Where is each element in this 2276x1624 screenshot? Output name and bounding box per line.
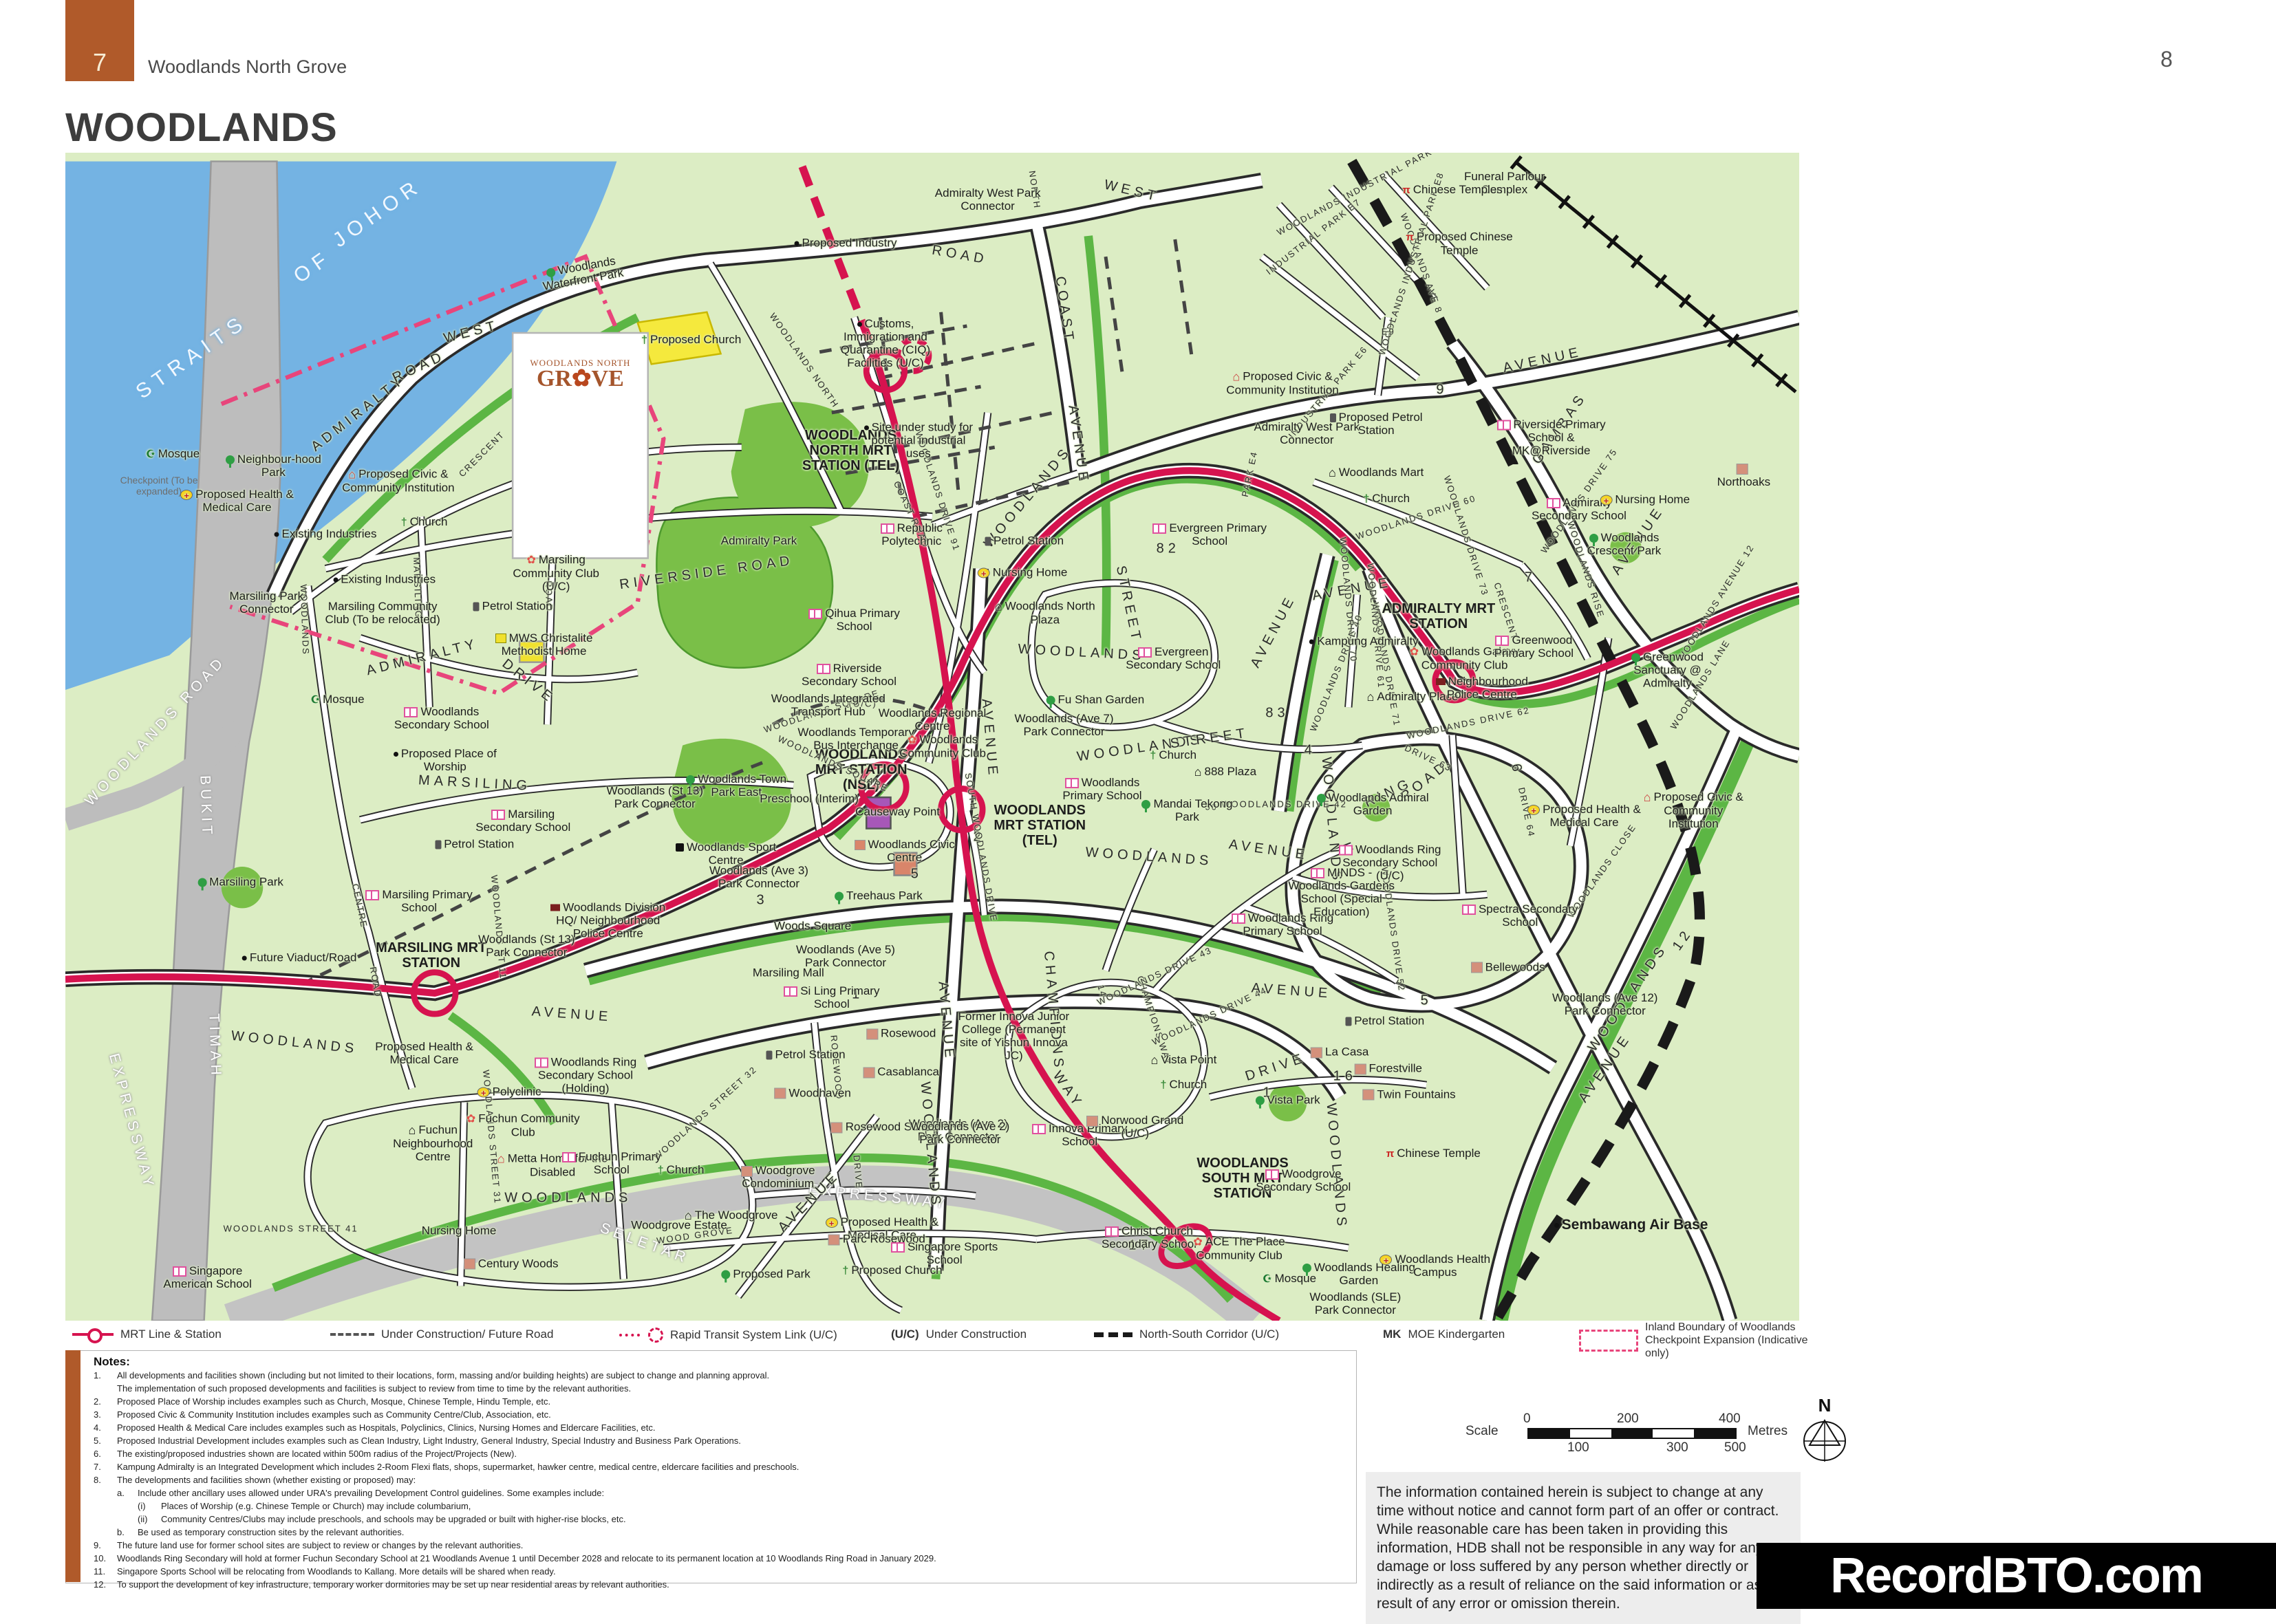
map-label: Woodlands Ring Secondary School (U/C)	[1331, 843, 1448, 883]
map-label-text: Marsiling Primary School	[382, 888, 472, 914]
ycross-icon	[826, 1217, 838, 1228]
map-label: Treehaus Park	[835, 889, 923, 902]
cross-icon: †	[1150, 749, 1156, 762]
map-label-text: Proposed Chinese Temple	[1417, 230, 1513, 257]
pump-icon	[473, 602, 480, 611]
yhouse-icon	[495, 634, 506, 643]
map-label-text: Spectra Secondary School	[1479, 902, 1578, 929]
map-label: Woodgrove Secondary School	[1245, 1167, 1362, 1193]
map-label: ⌂Proposed Civic & Community Institution	[1224, 369, 1341, 396]
map-label: Vista Park	[1256, 1094, 1320, 1107]
tree-icon	[835, 891, 844, 900]
tree-icon	[197, 878, 206, 887]
map-label-text: Woodlands (Ave 7) Park Connector	[1015, 712, 1114, 738]
map-label: 6	[1507, 762, 1525, 777]
map-label: WOODLANDS DRIVE 62	[1406, 704, 1531, 741]
north-compass: N	[1797, 1395, 1852, 1464]
scale-0: 0	[1523, 1411, 1531, 1427]
tree-icon	[686, 775, 695, 784]
map-label-text: Rosewood	[881, 1027, 936, 1040]
map-label-text: Woodlands Sport Centre	[687, 841, 776, 867]
map-label: TIMAH	[205, 1013, 224, 1079]
book-icon	[808, 609, 822, 619]
map-label: ✿Marsiling Community Club (U/C)	[497, 553, 614, 593]
map-label: Future Viaduct/Road	[242, 951, 357, 964]
salmon-icon	[828, 1234, 840, 1245]
map-label: Singapore Sports School	[886, 1240, 1003, 1266]
map-label-text: Riverside Primary School & MK@Riverside	[1512, 418, 1606, 457]
map-label-text: STRAITS	[132, 310, 252, 404]
notes-list: 1.All developments and facilities shown …	[94, 1369, 1349, 1591]
page-title: WOODLANDS	[65, 105, 338, 151]
map-label-text: WOODLANDS DRIVE 43	[1095, 945, 1214, 1008]
map-label-text: Woodgrove Estate	[631, 1218, 727, 1231]
map-label-text: Woodlands (Ave 12) Park Connector	[1552, 991, 1657, 1017]
map-label: Northoaks	[1716, 462, 1772, 488]
map-label-text: Fuchun Neighbourhood Centre	[393, 1123, 473, 1163]
map-label: Evergreen Secondary School	[1115, 645, 1232, 671]
map-label-text: WOODLANDS MRT STATION (TEL)	[994, 803, 1086, 848]
map-label: Bellewoods	[1471, 960, 1545, 973]
map-label-text: Marsiling Park	[209, 875, 283, 888]
torii-icon: π	[1402, 184, 1410, 197]
map-label-text: WAY	[1049, 1069, 1086, 1112]
map-label-text: Woodhaven	[788, 1086, 850, 1099]
index-tab: 7	[65, 0, 134, 81]
map-label: Causeway Point	[855, 805, 940, 818]
book-icon	[1497, 420, 1511, 431]
map-label-text: WOODLANDS	[504, 1190, 632, 1205]
scale-500: 500	[1724, 1440, 1746, 1455]
map-label: Woodlands (St 13) Park Connector	[597, 784, 713, 810]
map-label-text: Woodlands Admiral Garden	[1329, 791, 1429, 817]
map-label-text: AVENUE	[1502, 345, 1584, 376]
book-icon	[1032, 1124, 1046, 1134]
watermark: RecordBTO.com	[1757, 1543, 2276, 1609]
map-label: WOODLANDS	[1085, 845, 1213, 869]
map-label-text: WOODLANDS	[1324, 1103, 1350, 1231]
scale-unit: Metres	[1748, 1424, 1787, 1439]
map-label-text: Norwood Grand (U/C)	[1101, 1114, 1183, 1140]
map-label-text: OF	[290, 246, 336, 288]
tree-icon	[1589, 534, 1598, 543]
scale-label: Scale	[1466, 1424, 1499, 1439]
salmon-icon	[1355, 1063, 1366, 1074]
map-label-text: Vista Park	[1267, 1094, 1320, 1107]
map-label-text: Bellewoods	[1485, 960, 1545, 973]
ycross-icon	[180, 490, 193, 500]
book-icon	[1138, 647, 1152, 658]
salmon-icon	[774, 1088, 786, 1099]
compass-icon	[1801, 1416, 1848, 1463]
map-label: Kampung Admiralty	[1309, 634, 1418, 647]
map-label: ROAD	[390, 349, 448, 387]
map-label: Existing Industries	[333, 572, 436, 585]
legend-inland: Inland Boundary of Woodlands Checkpoint …	[1579, 1321, 1817, 1360]
legend-nsc: North-South Corridor (U/C)	[1094, 1328, 1279, 1341]
tree-icon	[1317, 794, 1326, 803]
map-label: Marsiling Park Connector	[208, 589, 325, 616]
map-label-text: AVENUE	[1065, 404, 1091, 486]
book-icon	[817, 664, 830, 674]
map-label: WAY	[1049, 1069, 1086, 1112]
book-icon	[173, 1266, 186, 1277]
map-label-text: Marsiling Community Club (To be relocate…	[325, 600, 440, 626]
map-label: ⌂Woodlands Mart	[1329, 466, 1424, 479]
map-label-text: Qihua Primary School	[825, 607, 900, 633]
note-item: 4.Proposed Health & Medical Care include…	[94, 1421, 1349, 1434]
rhouse-icon: ⌂	[1644, 791, 1651, 804]
map-label-text: Proposed Place of Worship	[401, 747, 497, 773]
book-icon	[1547, 498, 1560, 508]
map-label: Nursing Home	[978, 565, 1068, 578]
map-label-text: Proposed Petrol Station	[1339, 411, 1423, 437]
map-label: COAST	[1051, 276, 1077, 345]
scale-300: 300	[1666, 1440, 1688, 1455]
map-label: Forestville	[1355, 1062, 1422, 1075]
map-label-text: STREET	[1113, 565, 1144, 645]
map-label: 7	[1525, 570, 1536, 586]
map-label-text: Neighbour-hood Park	[237, 453, 321, 479]
map-label: Sembawang Air Base	[1554, 1217, 1708, 1233]
dashed-road-icon	[330, 1333, 374, 1336]
map-label: Former Innova Junior College (Permanent …	[955, 1010, 1072, 1062]
map-label-text: WOODLANDS AVENUE 12	[1676, 542, 1757, 662]
ycross-icon	[1527, 805, 1540, 815]
map-label-text: Nursing Home	[1615, 493, 1690, 506]
map-label-text: Woodlands Ring Secondary School (U/C)	[1342, 843, 1441, 883]
torii-icon: π	[1406, 231, 1413, 244]
map-label-text: Causeway Point	[855, 805, 940, 818]
map-label: Woodlands Sport Centre	[667, 841, 784, 867]
map-label: Riverside Primary School & MK@Riverside	[1493, 418, 1610, 457]
map-label: Spectra Secondary School	[1461, 902, 1578, 929]
map-label-text: 16	[1333, 1069, 1357, 1084]
cross-icon: †	[1161, 1079, 1167, 1092]
map-label-text: Preschool (Interim)	[760, 792, 859, 805]
map-label-text: Woodlands (Ave 5) Park Connector	[796, 943, 895, 969]
house-icon: ⌂	[408, 1124, 416, 1137]
legend-nsc-label: North-South Corridor (U/C)	[1139, 1328, 1279, 1341]
map-label: WOODLANDS STREET 32	[652, 1064, 759, 1162]
salmon-icon	[1471, 962, 1483, 973]
tree-icon	[1256, 1096, 1265, 1105]
map-label: Rosewood	[866, 1027, 936, 1040]
map-label-text: WOODLANDS DRIVE 73	[1442, 475, 1491, 597]
inland-boundary-icon	[1579, 1330, 1638, 1352]
map-label-text: Woodlands Division HQ/ Neighbourhood Pol…	[556, 900, 665, 940]
salmon-icon	[1362, 1090, 1374, 1101]
grove-logo: WOODLANDS NORTH GR✿VE	[516, 340, 644, 425]
map-label: Woodlands Regional Centre	[874, 706, 991, 733]
rhouse-icon: ⌂	[1232, 370, 1240, 383]
map-label: Woodlands Integrated Transport Hub	[770, 692, 887, 718]
map-label: Woods Square	[774, 920, 851, 933]
book-icon	[1105, 1226, 1119, 1237]
map-label-text: 7	[1525, 570, 1536, 585]
map-label: Woodgrove Condominium	[720, 1164, 837, 1190]
map-label: ✿ACE The Place Community Club	[1181, 1235, 1298, 1262]
map-label-text: Casablanca	[877, 1065, 939, 1079]
map-label: Marsiling Park	[197, 875, 283, 888]
index-number: 7	[65, 48, 134, 77]
map-label: AVENUE	[531, 1004, 612, 1026]
map-label: Woodlands Admiral Garden	[1314, 791, 1431, 817]
map-label: Proposed Place of Worship	[387, 747, 504, 773]
legend-mk: MK MOE Kindergarten	[1383, 1328, 1505, 1341]
cross-icon: †	[401, 516, 407, 529]
map-label-text: AVENUE	[1248, 592, 1299, 670]
map-label-text: Proposed Church	[650, 333, 741, 346]
map-label: Petrol Station	[435, 838, 514, 851]
book-icon	[891, 1242, 905, 1253]
note-item: The implementation of such proposed deve…	[94, 1382, 1349, 1395]
map-label-text: WOODLANDS	[1085, 845, 1213, 869]
map-label: Nursing Home	[1600, 493, 1690, 506]
map-label: πChinese Temple	[1386, 1147, 1481, 1160]
map-label: Woodlands Health Campus	[1377, 1253, 1494, 1279]
map-canvas: STRAITSOFJOHORCheckpoint (To be expanded…	[65, 153, 1799, 1321]
map-label: Woodlands (Ave 12) Park Connector	[1547, 991, 1664, 1017]
map-label: WOODLANDS AVENUE 12	[1676, 542, 1757, 662]
map-label: 3	[756, 892, 768, 908]
book-icon	[1462, 905, 1476, 915]
map-label: ⌂888 Plaza	[1194, 765, 1257, 779]
map-label-text: Twin Fountains	[1377, 1087, 1455, 1101]
map-label: Woodlands (Ave 3) Park Connector	[700, 864, 817, 890]
salmon-icon	[464, 1259, 475, 1270]
map-label: Proposed Health & Medical Care	[1526, 803, 1643, 829]
map-label-text: Woodlands Health Campus	[1395, 1253, 1490, 1279]
map-label: πProposed Chinese Temple	[1401, 230, 1518, 257]
book-icon	[1265, 1169, 1279, 1180]
book-icon	[491, 810, 505, 820]
map-label: ☪Mosque	[146, 447, 200, 461]
crescent-icon: ☪	[1263, 1273, 1271, 1286]
map-label: Singapore American School	[149, 1264, 266, 1290]
map-label: Customs, Immigration and Quarantine (CIQ…	[827, 317, 944, 369]
map-label: Woodlands Crescent Park	[1565, 531, 1682, 557]
map-label-text: DRIVE	[851, 1155, 864, 1190]
map-label-text: La Casa	[1325, 1046, 1368, 1059]
map-label-text: WEST	[1103, 177, 1161, 205]
disclaimer-text: The information contained herein is subj…	[1366, 1472, 1801, 1624]
map-label-text: Neighbourhood Police Centre	[1447, 675, 1528, 701]
map-label: †Church	[1150, 748, 1196, 762]
map-label-text: Church	[1159, 748, 1196, 761]
salmon-icon	[866, 1028, 878, 1039]
rts-circle-icon	[648, 1328, 663, 1343]
map-label-text: Woodlands Ring Secondary School (Holding…	[538, 1056, 636, 1095]
note-item: 9.The future land use for former school …	[94, 1539, 1349, 1552]
notes-accent-bar	[65, 1350, 80, 1582]
salmon-icon	[741, 1166, 753, 1177]
map-label: WOODLANDS STREET 41	[224, 1223, 358, 1233]
map-label-text: Si Ling Primary School	[800, 984, 879, 1010]
map-label: CRESCENT	[457, 429, 506, 479]
dot-icon	[275, 532, 279, 537]
torii-icon: π	[1386, 1147, 1394, 1160]
map-label: ⌂Proposed Civic & Community Institution	[1640, 790, 1746, 830]
map-label: 83	[1265, 706, 1289, 722]
map-label-text: Proposed Civic & Community Institution	[1226, 369, 1338, 396]
map-label: Woodlands Secondary School	[383, 705, 500, 731]
map-label-text: JOHOR	[328, 174, 426, 252]
map-label-text: 83	[1265, 706, 1289, 721]
rhouse-icon: ⌂	[348, 468, 356, 481]
book-icon	[365, 890, 379, 900]
notes-box: Notes: 1.All developments and facilities…	[65, 1350, 1357, 1583]
book-icon	[1152, 523, 1166, 534]
map-label-text: Proposed Civic & Community Institution	[342, 468, 454, 495]
note-item: 3.Proposed Civic & Community Institution…	[94, 1408, 1349, 1421]
map-label-text: Sembawang Air Base	[1562, 1217, 1708, 1233]
map-label: AVENUE	[1064, 404, 1091, 486]
pump-icon	[985, 537, 991, 545]
map-label-text: Fuchun Community Club	[478, 1112, 579, 1139]
map-label-text: Petrol Station	[775, 1048, 846, 1061]
map-label-text: WOODLANDS STREET 41	[224, 1223, 358, 1233]
map-label: MARSILING	[418, 772, 531, 794]
map-label: Neighbourhood Police Centre	[1424, 675, 1540, 701]
map-label: Proposed Petrol Station	[1318, 411, 1435, 437]
map-label: Qihua Primary School	[796, 607, 913, 633]
legend-rts: Rapid Transit System Link (U/C)	[619, 1328, 837, 1343]
map-label: πChinese Temples	[1402, 183, 1503, 197]
map-label-text: 3	[756, 892, 768, 907]
map-label: Existing Industries	[275, 527, 377, 540]
map-label-text: Former Innova Junior College (Permanent …	[958, 1010, 1070, 1062]
map-label: DRIVE	[1243, 1050, 1308, 1085]
map-label: Fu Shan Garden	[1046, 693, 1145, 706]
legend-uc-label: Under Construction	[926, 1328, 1027, 1341]
map-label: AVENUE	[1251, 981, 1332, 1002]
map-label-text: Woodlands Crescent Park	[1587, 531, 1662, 557]
rhouse-icon: ⌂	[497, 1153, 505, 1166]
map-label: Greenwood Sanctuary @ Admiralty	[1609, 651, 1726, 690]
cc-icon: ✿	[908, 733, 916, 746]
map-label-text: 6	[1508, 762, 1525, 777]
tree-icon	[226, 455, 235, 464]
map-label-text: Vista Point	[1161, 1053, 1216, 1066]
book-icon	[881, 523, 894, 534]
map-label-text: Church	[667, 1163, 705, 1176]
map-label: Proposed Health & Medical Care	[366, 1040, 483, 1066]
scale-100: 100	[1567, 1440, 1589, 1455]
house-icon: ⌂	[1194, 766, 1202, 779]
house-icon: ⌂	[1367, 691, 1375, 704]
map-label: Evergreen Primary School	[1151, 521, 1268, 548]
map-label-text: ROAD	[390, 349, 447, 387]
map-label-text: ACE The Place Community Club	[1196, 1235, 1285, 1262]
dot-icon	[857, 322, 862, 327]
map-label-text: Fu Shan Garden	[1058, 693, 1145, 706]
book-icon	[784, 986, 797, 997]
book-icon	[1311, 868, 1324, 878]
tree-icon	[721, 1270, 730, 1279]
map-label-text: BUKIT	[197, 775, 215, 839]
map-label: 12	[1670, 926, 1696, 954]
map-label-text: AVENUE	[936, 981, 958, 1062]
map-label: WEST	[442, 318, 500, 347]
map-label-text: PARK E4	[1240, 450, 1260, 498]
police-icon	[1436, 678, 1446, 685]
map-label-text: Proposed Park	[733, 1268, 810, 1281]
map-label: Woodlands Ring Secondary School (Holding…	[527, 1056, 644, 1095]
map-label: Woodlands (SLE) Park Connector	[1297, 1290, 1414, 1317]
map-label: EXPRESSWAY	[105, 1052, 158, 1192]
map-label-text: Woodlands (Ave 3) Park Connector	[709, 864, 808, 890]
osq-icon	[855, 840, 866, 850]
map-label: ☪Mosque	[1263, 1272, 1316, 1286]
cross-icon: †	[658, 1164, 664, 1177]
salmon-icon	[1086, 1116, 1098, 1127]
map-label-text: ADMIRALTY	[365, 636, 480, 678]
map-label: WOODLANDS	[230, 1028, 358, 1057]
note-item: 7.Kampung Admiralty is an Integrated Dev…	[94, 1460, 1349, 1473]
note-item: 5.Proposed Industrial Development includ…	[94, 1434, 1349, 1447]
map-label-text: 5	[1421, 993, 1432, 1008]
map-label: 9	[1436, 382, 1448, 398]
note-item: 12.To support the development of key inf…	[94, 1578, 1349, 1591]
map-label-text: Woods Square	[774, 920, 851, 933]
map-label: Century Woods	[464, 1257, 559, 1270]
north-label: N	[1797, 1395, 1852, 1416]
map-label-text: Site under study for potential industria…	[871, 420, 973, 459]
map-label-text: Mosque	[1275, 1272, 1316, 1285]
pump-icon	[766, 1050, 773, 1059]
note-item: (i)Places of Worship (e.g. Chinese Templ…	[138, 1500, 1349, 1513]
map-label: ⌂Woodlands North Plaza	[987, 599, 1104, 626]
note-item: 10.Woodlands Ring Secondary will hold at…	[94, 1552, 1349, 1565]
map-label: 5	[911, 867, 923, 883]
map-label-text: Kampung Admiralty	[1317, 634, 1418, 647]
tree-icon	[1046, 695, 1055, 704]
book-icon	[1065, 778, 1079, 788]
map-label-text: 4	[1305, 743, 1316, 758]
index-title: Woodlands North Grove	[148, 56, 347, 78]
pump-icon	[435, 841, 441, 849]
map-labels: STRAITSOFJOHORCheckpoint (To be expanded…	[65, 153, 1799, 1321]
map-label-text: 9	[1436, 382, 1448, 397]
note-item: 8.The developments and facilities shown …	[94, 1473, 1349, 1486]
house-icon: ⌂	[1329, 466, 1336, 479]
scale-200: 200	[1617, 1411, 1639, 1427]
map-label-text: Church	[1169, 1078, 1207, 1091]
map-label-text: ADMIRALTY MRT STATION	[1382, 601, 1495, 631]
map-label: Petrol Station	[766, 1048, 846, 1061]
map-label: WEST	[1102, 177, 1161, 206]
map-label: Norwood Grand (U/C)	[1077, 1114, 1194, 1140]
map-label: BUKIT	[197, 775, 215, 839]
map-label-text: Mosque	[323, 693, 364, 706]
map-label: Woodlands Primary School	[1044, 776, 1161, 802]
map-label: 16	[1333, 1069, 1357, 1085]
cc-icon: ✿	[466, 1113, 475, 1126]
crescent-icon: ☪	[311, 693, 320, 706]
book-icon	[1232, 913, 1245, 924]
map-label-text: Nursing Home	[422, 1224, 497, 1237]
map-label: ADMIRALTY	[365, 636, 480, 679]
map-label-text: ROAD	[931, 243, 989, 268]
map-label-text: Treehaus Park	[846, 889, 923, 902]
map-label: AVENUE	[1502, 345, 1584, 377]
map-label-text: 12	[1670, 926, 1696, 954]
map-label: Proposed Health & Medical Care	[178, 488, 295, 514]
map-label: Fuchun Primary School	[553, 1150, 670, 1176]
salmon-icon	[1737, 464, 1748, 475]
map-label-text: AVENUE	[531, 1004, 612, 1025]
